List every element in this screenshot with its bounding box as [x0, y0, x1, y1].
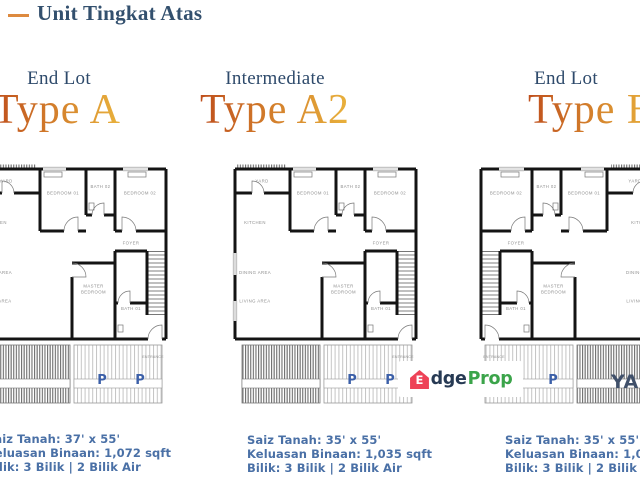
room-label-bedroom01: BEDROOM 01 — [47, 191, 79, 196]
spec-land-size: Saiz Tanah: 35' x 55' — [247, 433, 432, 447]
brand-text-prop: Prop — [468, 369, 513, 389]
room-label-master-1: MASTER — [333, 284, 353, 289]
unit3-type-title: Type B — [528, 86, 640, 134]
room-label-living: LIVING AREA — [239, 299, 270, 304]
room-label-master-2: BEDROOM — [331, 290, 356, 295]
room-label-dining: DINING AREA — [239, 270, 271, 275]
unit1-type-title: Type A — [0, 86, 121, 134]
room-label-bedroom01: BEDROOM 01 — [568, 191, 600, 196]
room-label-bedroom02: BEDROOM 02 — [374, 191, 406, 196]
room-label-kitchen: KITCHEN — [631, 220, 640, 225]
room-label-foyer: FOYER — [123, 241, 140, 246]
title-accent-dash — [8, 14, 29, 17]
room-label-bath02: BATH 02 — [91, 184, 111, 189]
parking-mark: P — [135, 373, 145, 388]
room-label-bedroom02: BEDROOM 02 — [490, 191, 522, 196]
entrance-label: ENTRANCE — [142, 355, 164, 359]
room-label-bath02: BATH 02 — [537, 184, 557, 189]
edgeprop-watermark: E dge Prop — [398, 361, 523, 397]
floor-plan-type-a: YARD BEDROOM 01 BATH 02 BEDROOM 02 KITCH… — [0, 163, 172, 433]
room-label-bath02: BATH 02 — [341, 184, 361, 189]
brand-letter-e: E — [415, 373, 423, 387]
room-label-dining: DINING AREA — [0, 270, 12, 275]
room-label-master-2: BEDROOM — [541, 290, 566, 295]
unit2-specs: Saiz Tanah: 35' x 55' Keluasan Binaan: 1… — [247, 433, 432, 475]
room-label-foyer: FOYER — [508, 241, 525, 246]
room-label-foyer: FOYER — [373, 241, 390, 246]
spec-rooms: Bilik: 3 Bilik | 2 Bilik Air — [505, 461, 640, 475]
room-label-bedroom01: BEDROOM 01 — [297, 191, 329, 196]
spec-built-up: Keluasan Binaan: 1,035 sqft — [247, 447, 432, 461]
room-label-living: LIVING AREA — [0, 299, 12, 304]
unit2-type-title: Type A2 — [200, 86, 350, 134]
spec-built-up: Keluasan Binaan: 1,072 sqft — [0, 446, 171, 460]
room-label-living: LIVING AREA — [626, 299, 640, 304]
room-label-yard: YARD — [255, 179, 268, 184]
spec-rooms: Bilik: 3 Bilik | 2 Bilik Air — [0, 460, 171, 474]
room-label-master-2: BEDROOM — [81, 290, 106, 295]
clipped-text-fragment: YA — [611, 371, 639, 393]
page-title: Unit Tingkat Atas — [37, 1, 202, 26]
spec-built-up: Keluasan Binaan: 1,035 sqft — [505, 447, 640, 461]
room-label-master-1: MASTER — [543, 284, 563, 289]
entrance-label: ENTRANCE — [483, 355, 505, 359]
unit1-specs: Saiz Tanah: 37' x 55' Keluasan Binaan: 1… — [0, 432, 171, 474]
room-label-yard: YARD — [0, 179, 13, 184]
spec-rooms: Bilik: 3 Bilik | 2 Bilik Air — [247, 461, 432, 475]
parking-mark: P — [548, 373, 558, 388]
parking-mark: P — [385, 373, 395, 388]
unit3-specs: Saiz Tanah: 35' x 55' Keluasan Binaan: 1… — [505, 433, 640, 475]
room-label-bath01: BATH 01 — [506, 306, 526, 311]
floor-plan-type-a2: YARD BEDROOM 01 BATH 02 BEDROOM 02 KITCH… — [232, 163, 422, 433]
room-label-bath01: BATH 01 — [121, 306, 141, 311]
room-label-dining: DINING AREA — [626, 270, 640, 275]
parking-mark: P — [347, 373, 357, 388]
room-label-bath01: BATH 01 — [371, 306, 391, 311]
room-label-master-1: MASTER — [83, 284, 103, 289]
room-label-yard: YARD — [628, 179, 640, 184]
brand-text-dge: dge — [431, 369, 467, 389]
spec-land-size: Saiz Tanah: 35' x 55' — [505, 433, 640, 447]
edgeprop-house-icon: E — [409, 369, 430, 390]
room-label-bedroom02: BEDROOM 02 — [124, 191, 156, 196]
parking-mark: P — [97, 373, 107, 388]
spec-land-size: Saiz Tanah: 37' x 55' — [0, 432, 171, 446]
room-label-kitchen: KITCHEN — [0, 220, 7, 225]
room-label-kitchen: KITCHEN — [244, 220, 266, 225]
entrance-label: ENTRANCE — [392, 355, 414, 359]
